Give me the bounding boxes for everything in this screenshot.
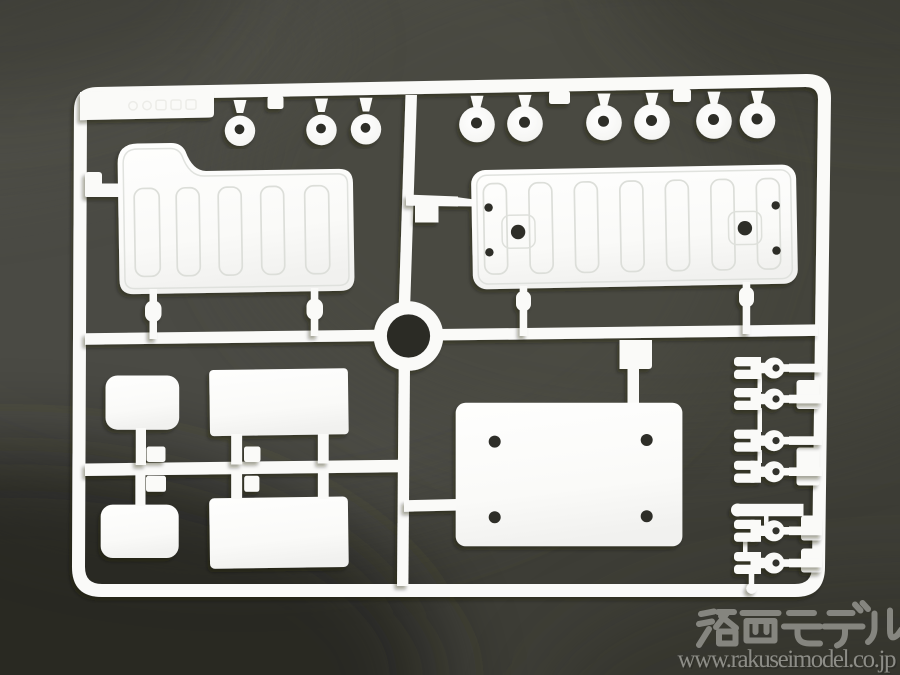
svg-text:www.rakuseimodel.co.jp: www.rakuseimodel.co.jp bbox=[678, 646, 897, 673]
